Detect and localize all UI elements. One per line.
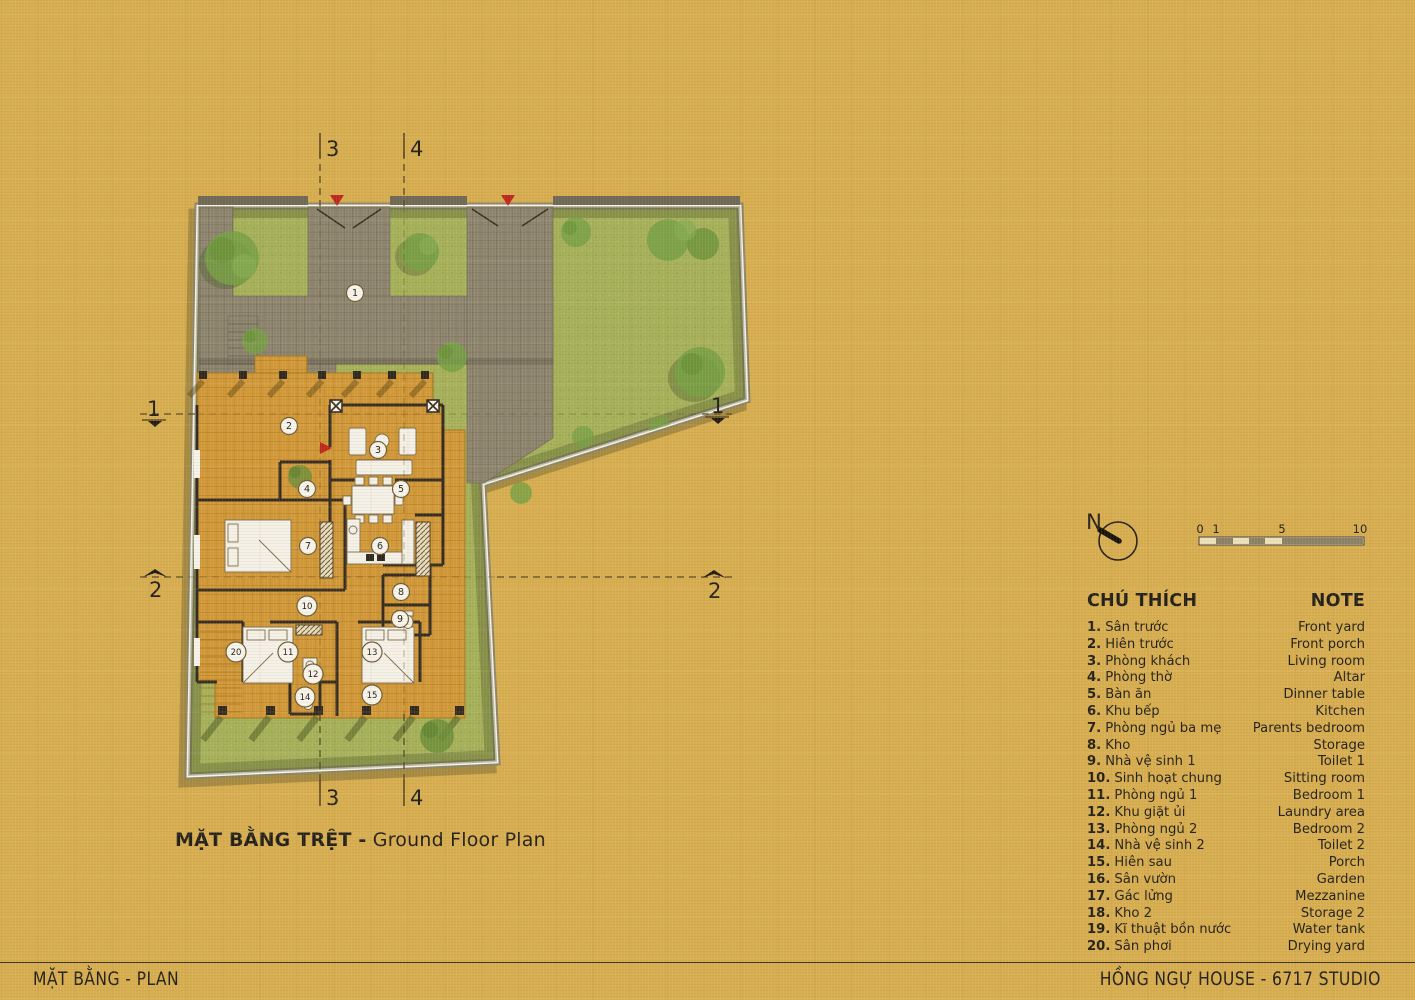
legend: CHÚ THÍCH NOTE 1.Sân trướcFront yard2.Hi… xyxy=(1087,591,1365,956)
legend-item: 6.Khu bếpKitchen xyxy=(1087,704,1365,721)
legend-item: 9.Nhà vệ sinh 1Toilet 1 xyxy=(1087,754,1365,771)
legend-item: 4.Phòng thờAltar xyxy=(1087,670,1365,687)
room-marker-11: 11 xyxy=(278,642,298,662)
drawing-sheet: { "plan": { "title_bold": "MẶT BẰNG TRỆT… xyxy=(0,0,1415,1000)
legend-item-english: Laundry area xyxy=(1278,805,1365,822)
legend-item: 7.Phòng ngủ ba mẹParents bedroom xyxy=(1087,721,1365,738)
section-label-4-bottom: 4 xyxy=(410,786,423,810)
legend-item-vietnamese: Phòng thờ xyxy=(1105,670,1172,687)
legend-item-vietnamese: Kho xyxy=(1105,738,1130,755)
section-label-2-west: 2 xyxy=(149,578,162,602)
legend-item-number: 1. xyxy=(1087,620,1101,637)
section-label-4-top: 4 xyxy=(410,137,423,161)
room-marker-14: 14 xyxy=(295,687,315,707)
room-marker-9: 9 xyxy=(392,611,409,628)
legend-item-english: Drying yard xyxy=(1288,939,1365,956)
legend-item-number: 19. xyxy=(1087,922,1110,939)
legend-item-english: Living room xyxy=(1287,654,1365,671)
legend-item-vietnamese: Phòng ngủ 1 xyxy=(1114,788,1197,805)
legend-item-number: 15. xyxy=(1087,855,1110,872)
legend-item-vietnamese: Phòng ngủ 2 xyxy=(1114,822,1197,839)
legend-item: 17.Gác lửngMezzanine xyxy=(1087,889,1365,906)
legend-item-number: 12. xyxy=(1087,805,1110,822)
room-marker-number: 20 xyxy=(231,648,242,658)
legend-item-english: Dinner table xyxy=(1283,687,1365,704)
legend-item-english: Front porch xyxy=(1290,637,1365,654)
legend-item-vietnamese: Khu bếp xyxy=(1105,704,1159,721)
tree xyxy=(561,217,591,247)
footer-project-name: HỒNG NGỰ HOUSE - 6717 STUDIO xyxy=(1100,968,1381,990)
room-marker-number: 3 xyxy=(375,445,381,456)
legend-item-vietnamese: Sân phơi xyxy=(1114,939,1171,956)
plan-title-en: Ground Floor Plan xyxy=(373,829,546,851)
room-marker-number: 15 xyxy=(367,691,378,701)
room-marker-6: 6 xyxy=(372,538,389,555)
legend-item-vietnamese: Gác lửng xyxy=(1114,889,1173,906)
tree xyxy=(572,426,594,448)
tree xyxy=(510,482,532,504)
plan-title-vn: MẶT BẰNG TRỆT - xyxy=(175,829,367,851)
section-label-1-west: 1 xyxy=(147,397,160,421)
legend-item-number: 18. xyxy=(1087,906,1110,923)
armchair xyxy=(399,428,416,455)
legend-item-english: Parents bedroom xyxy=(1253,721,1365,738)
armchair xyxy=(349,428,366,455)
room-marker-number: 4 xyxy=(304,484,310,495)
legend-item: 13.Phòng ngủ 2Bedroom 2 xyxy=(1087,822,1365,839)
room-marker-5: 5 xyxy=(393,481,410,498)
room-marker-number: 7 xyxy=(305,541,311,552)
scale-tick-label: 5 xyxy=(1278,522,1285,536)
section-label-3-top: 3 xyxy=(326,137,339,161)
legend-item-number: 16. xyxy=(1087,872,1110,889)
room-marker-4: 4 xyxy=(299,481,316,498)
tree xyxy=(420,719,454,753)
legend-item: 1.Sân trướcFront yard xyxy=(1087,620,1365,637)
legend-item-number: 3. xyxy=(1087,654,1101,671)
dresser xyxy=(296,625,322,635)
room-marker-20: 20 xyxy=(226,642,246,662)
room-marker-1: 1 xyxy=(347,285,364,302)
legend-item-english: Sitting room xyxy=(1284,771,1365,788)
legend-item: 12.Khu giặt ủiLaundry area xyxy=(1087,805,1365,822)
legend-items: 1.Sân trướcFront yard2.Hiên trướcFront p… xyxy=(1087,620,1365,956)
legend-item-vietnamese: Hiên trước xyxy=(1105,637,1174,654)
legend-item-number: 5. xyxy=(1087,687,1101,704)
room-marker-number: 9 xyxy=(397,614,403,625)
legend-item-number: 11. xyxy=(1087,788,1110,805)
legend-item-number: 13. xyxy=(1087,822,1110,839)
legend-item-english: Altar xyxy=(1334,670,1365,687)
legend-item-english: Storage 2 xyxy=(1301,906,1365,923)
legend-item: 15.Hiên sauPorch xyxy=(1087,855,1365,872)
legend-item: 14.Nhà vệ sinh 2Toilet 2 xyxy=(1087,838,1365,855)
dining-table xyxy=(352,486,394,514)
room-marker-12: 12 xyxy=(303,664,323,684)
wardrobe xyxy=(416,522,430,576)
room-marker-number: 14 xyxy=(300,693,311,703)
legend-item-number: 17. xyxy=(1087,889,1110,906)
footer-rule xyxy=(0,962,1415,963)
room-marker-number: 2 xyxy=(286,421,292,432)
legend-item: 11.Phòng ngủ 1Bedroom 1 xyxy=(1087,788,1365,805)
legend-item-english: Front yard xyxy=(1298,620,1365,637)
room-marker-2: 2 xyxy=(281,418,298,435)
room-marker-15: 15 xyxy=(362,685,382,705)
section-label-1-east: 1 xyxy=(711,394,724,418)
room-marker-number: 1 xyxy=(352,288,358,299)
section-label-3-bottom: 3 xyxy=(326,786,339,810)
legend-item-vietnamese: Bàn ăn xyxy=(1105,687,1151,704)
room-marker-13: 13 xyxy=(362,642,382,662)
legend-item: 18.Kho 2Storage 2 xyxy=(1087,906,1365,923)
legend-item-vietnamese: Sinh hoạt chung xyxy=(1114,771,1222,788)
legend-item: 16.Sân vườnGarden xyxy=(1087,872,1365,889)
entry-step xyxy=(255,356,307,373)
room-marker-number: 12 xyxy=(308,670,319,680)
north-label: N xyxy=(1086,510,1102,534)
legend-item-english: Porch xyxy=(1329,855,1365,872)
legend-item-english: Garden xyxy=(1317,872,1365,889)
north-needle xyxy=(1100,530,1119,541)
driveway-path xyxy=(467,207,553,483)
tree xyxy=(242,328,268,354)
room-marker-number: 11 xyxy=(283,648,294,658)
legend-item-vietnamese: Hiên sau xyxy=(1114,855,1172,872)
legend-item: 5.Bàn ănDinner table xyxy=(1087,687,1365,704)
plan-title: MẶT BẰNG TRỆT - Ground Floor Plan xyxy=(175,829,546,851)
legend-item-number: 9. xyxy=(1087,754,1101,771)
legend-item-number: 6. xyxy=(1087,704,1101,721)
legend-item: 2.Hiên trướcFront porch xyxy=(1087,637,1365,654)
scale-tick-label: 0 xyxy=(1196,522,1203,536)
legend-item: 20.Sân phơiDrying yard xyxy=(1087,939,1365,956)
legend-title-en: NOTE xyxy=(1311,591,1365,611)
legend-item-english: Toilet 2 xyxy=(1318,838,1365,855)
room-marker-8: 8 xyxy=(393,584,410,601)
room-marker-number: 10 xyxy=(302,602,313,612)
legend-item-vietnamese: Nhà vệ sinh 1 xyxy=(1105,754,1195,771)
room-marker-3: 3 xyxy=(370,442,387,459)
room-marker-7: 7 xyxy=(300,538,317,555)
legend-item-vietnamese: Nhà vệ sinh 2 xyxy=(1114,838,1204,855)
legend-item-english: Water tank xyxy=(1293,922,1365,939)
legend-item-english: Mezzanine xyxy=(1295,889,1365,906)
scale-tick-label: 10 xyxy=(1353,522,1368,536)
legend-item: 19.Kĩ thuật bồn nướcWater tank xyxy=(1087,922,1365,939)
legend-item-vietnamese: Kho 2 xyxy=(1114,906,1152,923)
scale-tick-label: 1 xyxy=(1212,522,1219,536)
footer-drawing-name: MẶT BẰNG - PLAN xyxy=(33,968,179,990)
legend-item-english: Bedroom 1 xyxy=(1293,788,1365,805)
legend-item-english: Kitchen xyxy=(1315,704,1365,721)
legend-item-vietnamese: Sân trước xyxy=(1105,620,1168,637)
room-marker-number: 5 xyxy=(398,484,404,495)
legend-title-vn: CHÚ THÍCH xyxy=(1087,591,1197,611)
room-marker-10: 10 xyxy=(297,596,317,616)
scale-bar: 01510 xyxy=(1196,522,1367,545)
north-arrow: N xyxy=(1086,510,1137,560)
legend-item-vietnamese: Sân vườn xyxy=(1114,872,1176,889)
legend-item-english: Toilet 1 xyxy=(1318,754,1365,771)
room-marker-number: 6 xyxy=(377,541,383,552)
legend-item-number: 10. xyxy=(1087,771,1110,788)
legend-item-number: 14. xyxy=(1087,838,1110,855)
legend-header: CHÚ THÍCH NOTE xyxy=(1087,591,1365,611)
legend-item: 3.Phòng kháchLiving room xyxy=(1087,654,1365,671)
section-label-2-east: 2 xyxy=(708,579,721,603)
legend-item: 8.KhoStorage xyxy=(1087,738,1365,755)
room-marker-number: 8 xyxy=(398,587,404,598)
room-marker-number: 13 xyxy=(367,648,378,658)
bed-parents xyxy=(225,520,291,572)
legend-item-number: 4. xyxy=(1087,670,1101,687)
legend-item-number: 20. xyxy=(1087,939,1110,956)
legend-item-english: Storage xyxy=(1313,738,1365,755)
legend-item-vietnamese: Kĩ thuật bồn nước xyxy=(1114,922,1231,939)
legend-item-vietnamese: Phòng ngủ ba mẹ xyxy=(1105,721,1221,738)
legend-item-english: Bedroom 2 xyxy=(1293,822,1365,839)
legend-item-number: 7. xyxy=(1087,721,1101,738)
legend-item-number: 8. xyxy=(1087,738,1101,755)
legend-item-vietnamese: Khu giặt ủi xyxy=(1114,805,1185,822)
scale-tick-labels: 01510 xyxy=(1196,522,1367,536)
legend-item-vietnamese: Phòng khách xyxy=(1105,654,1190,671)
stair-to-mezzanine xyxy=(320,522,333,578)
legend-item: 10.Sinh hoạt chungSitting room xyxy=(1087,771,1365,788)
tree xyxy=(437,342,467,372)
legend-item-number: 2. xyxy=(1087,637,1101,654)
